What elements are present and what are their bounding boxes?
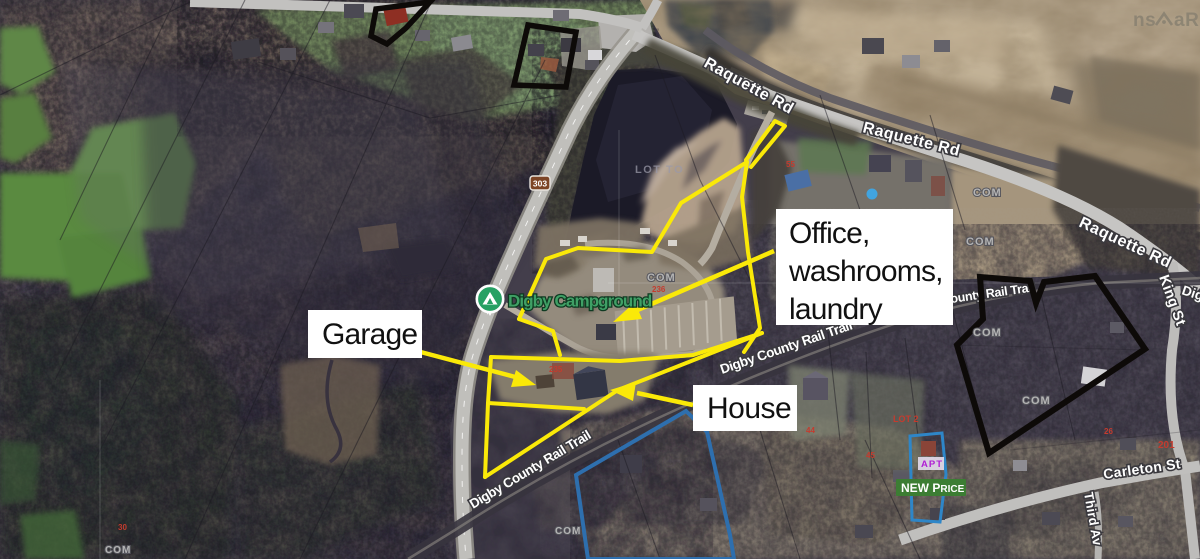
svg-text:laundry: laundry <box>789 293 883 326</box>
svg-text:House: House <box>707 392 791 425</box>
svg-text:aR: aR <box>1174 10 1199 31</box>
svg-text:NEW PRICE: NEW PRICE <box>901 481 965 495</box>
svg-text:APT: APT <box>921 459 943 470</box>
svg-text:COM: COM <box>1022 395 1051 407</box>
svg-text:COM: COM <box>555 526 581 537</box>
svg-text:Digby Campground: Digby Campground <box>508 292 652 311</box>
svg-text:COM: COM <box>647 272 676 284</box>
svg-text:303: 303 <box>533 179 547 189</box>
svg-text:30: 30 <box>118 523 127 532</box>
svg-text:44: 44 <box>806 426 815 435</box>
svg-text:45: 45 <box>866 451 875 460</box>
svg-text:201: 201 <box>1158 440 1175 451</box>
svg-text:washrooms,: washrooms, <box>788 255 943 288</box>
svg-text:55: 55 <box>786 160 795 169</box>
svg-text:236: 236 <box>652 285 666 294</box>
svg-text:ns: ns <box>1133 10 1156 31</box>
svg-text:Garage: Garage <box>322 318 417 351</box>
svg-text:Office,: Office, <box>789 217 870 250</box>
svg-text:26: 26 <box>1104 427 1113 436</box>
svg-text:LOT 2: LOT 2 <box>893 414 919 424</box>
svg-text:235: 235 <box>549 365 563 374</box>
svg-text:COM: COM <box>973 327 1002 339</box>
svg-text:COM: COM <box>973 187 1002 199</box>
svg-text:COM: COM <box>105 545 131 556</box>
svg-text:COM: COM <box>966 236 995 248</box>
svg-text:LOT TO: LOT TO <box>635 164 684 176</box>
